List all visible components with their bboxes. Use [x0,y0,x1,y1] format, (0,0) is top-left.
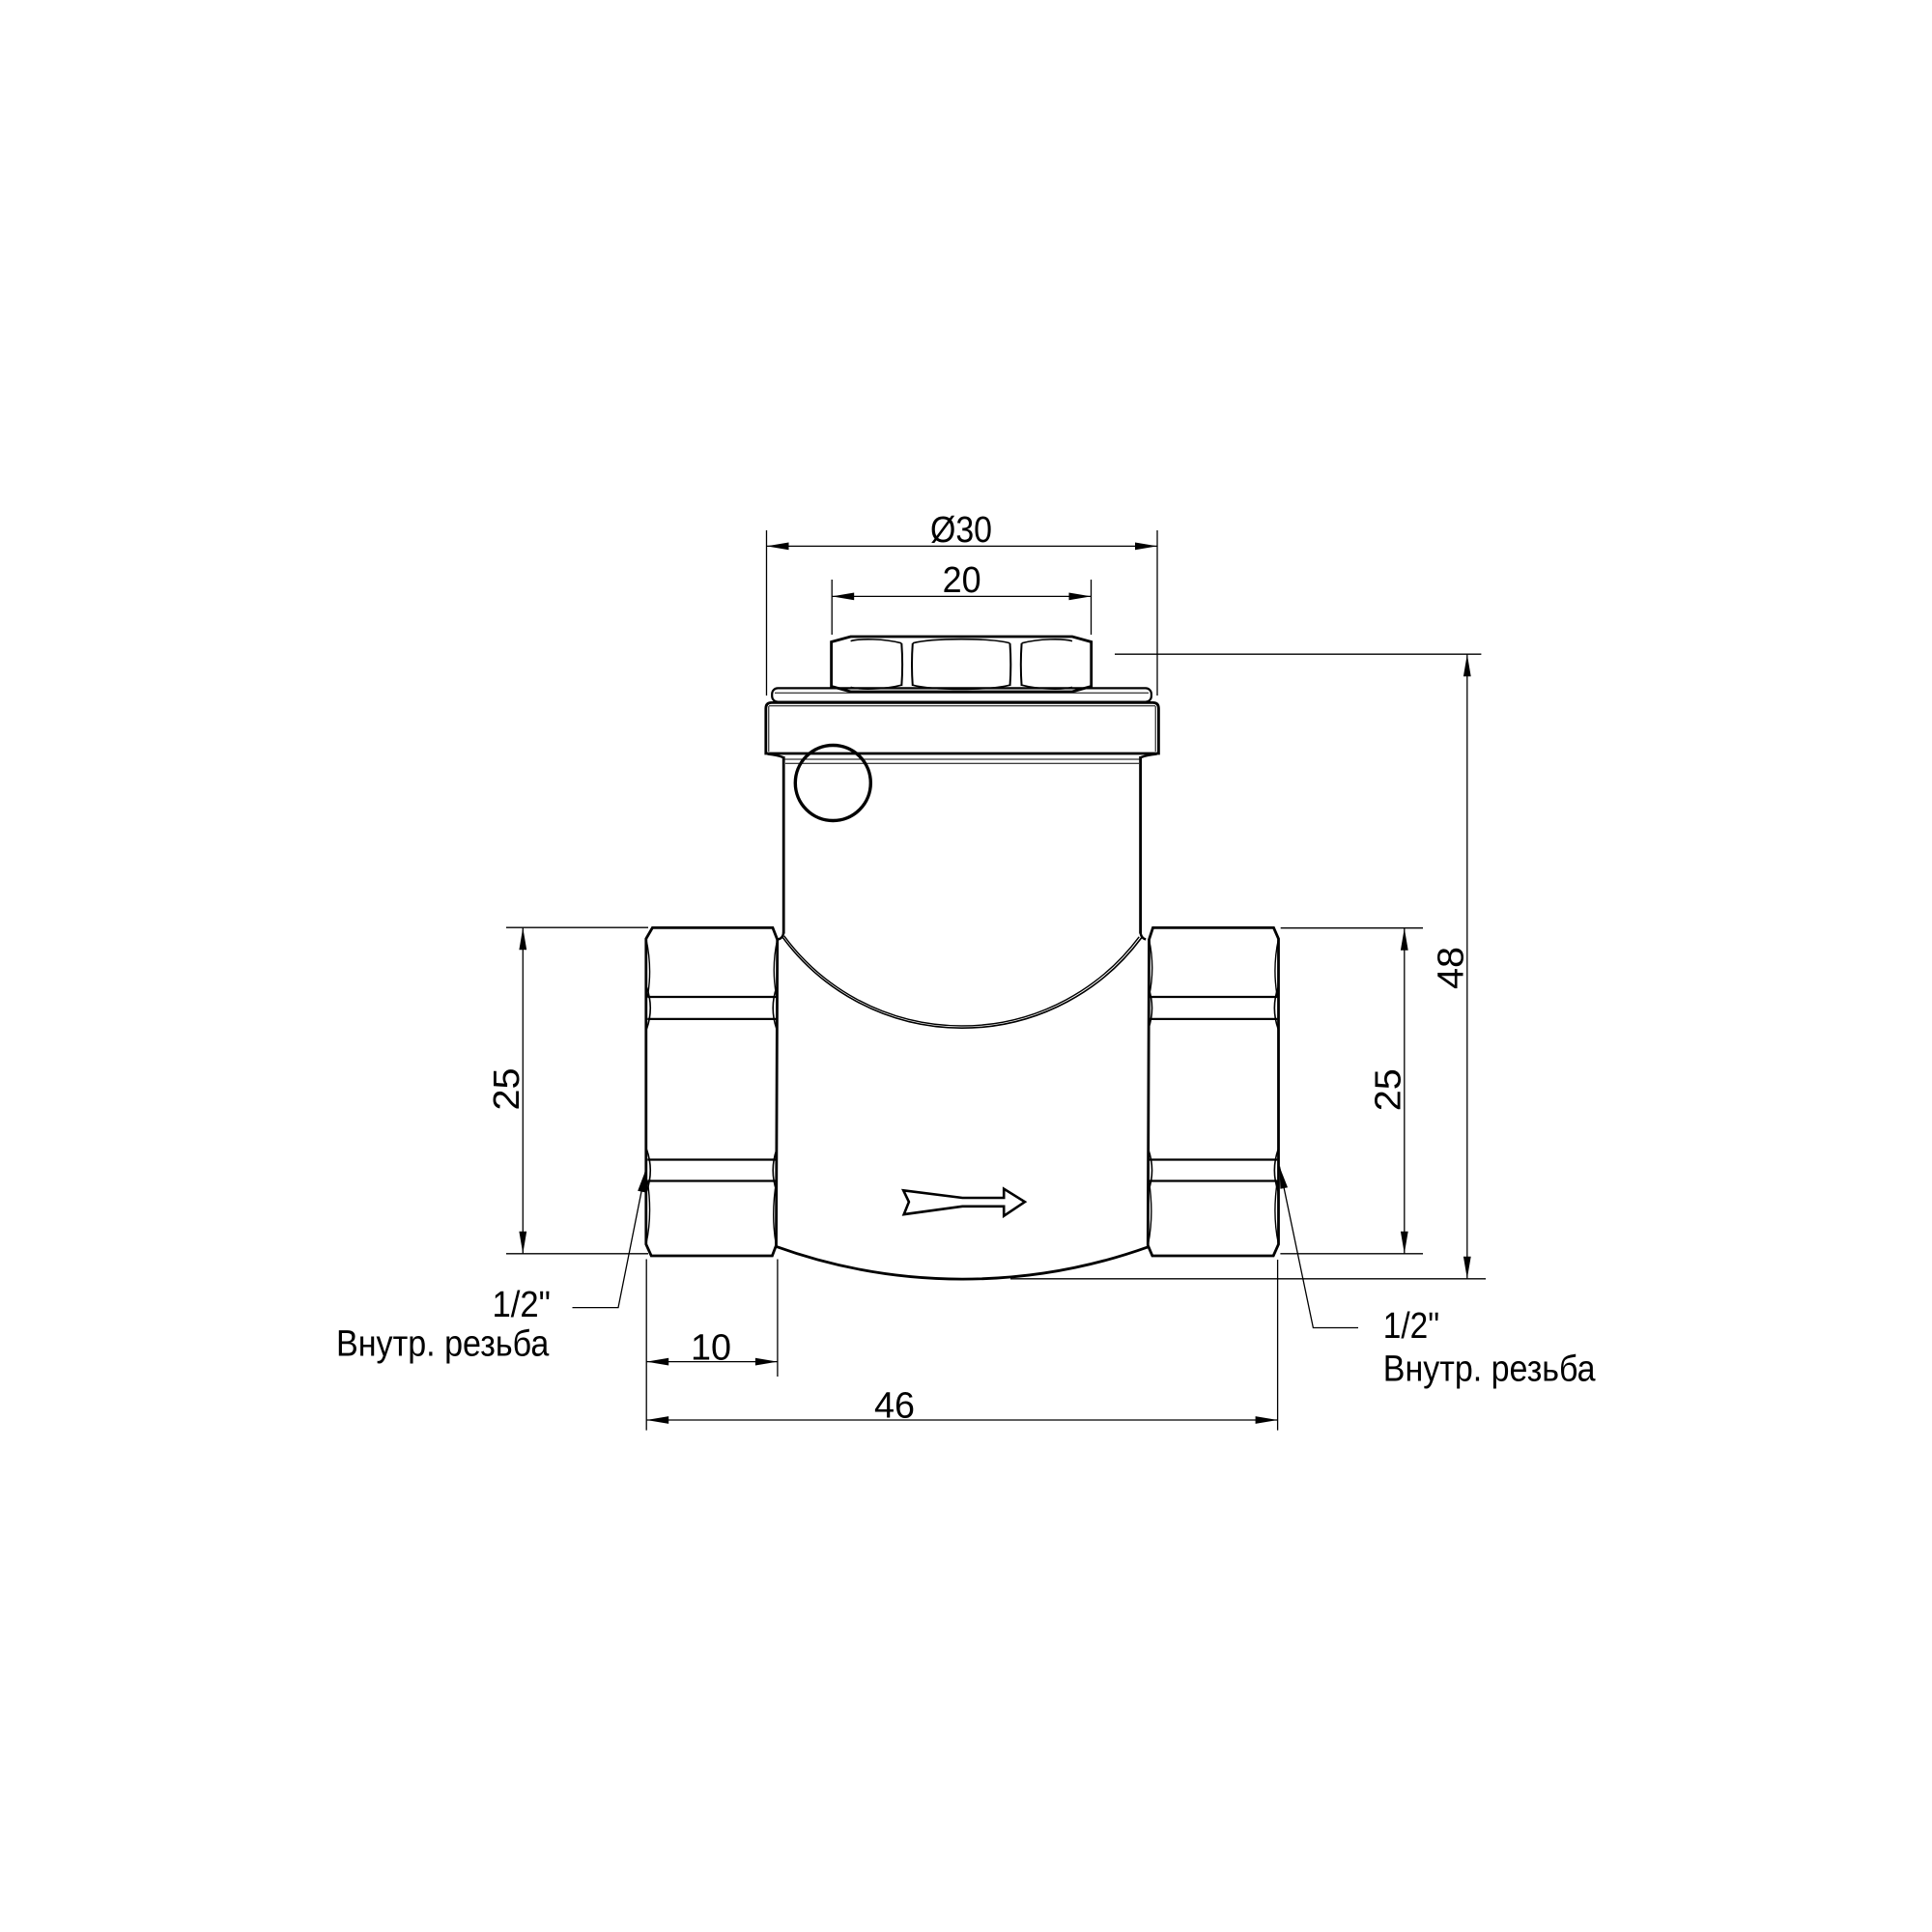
svg-text:1/2": 1/2" [493,1285,552,1325]
svg-text:20: 20 [943,560,981,601]
svg-text:25: 25 [1368,1068,1408,1111]
svg-text:10: 10 [691,1328,731,1369]
svg-text:Внутр. резьба: Внутр. резьба [1383,1349,1597,1389]
svg-text:1/2": 1/2" [1383,1306,1439,1347]
svg-text:Внутр. резьба: Внутр. резьба [336,1324,550,1365]
svg-text:25: 25 [487,1068,527,1111]
svg-text:48: 48 [1431,947,1471,989]
svg-text:Ø30: Ø30 [930,510,992,551]
svg-text:46: 46 [874,1386,915,1427]
